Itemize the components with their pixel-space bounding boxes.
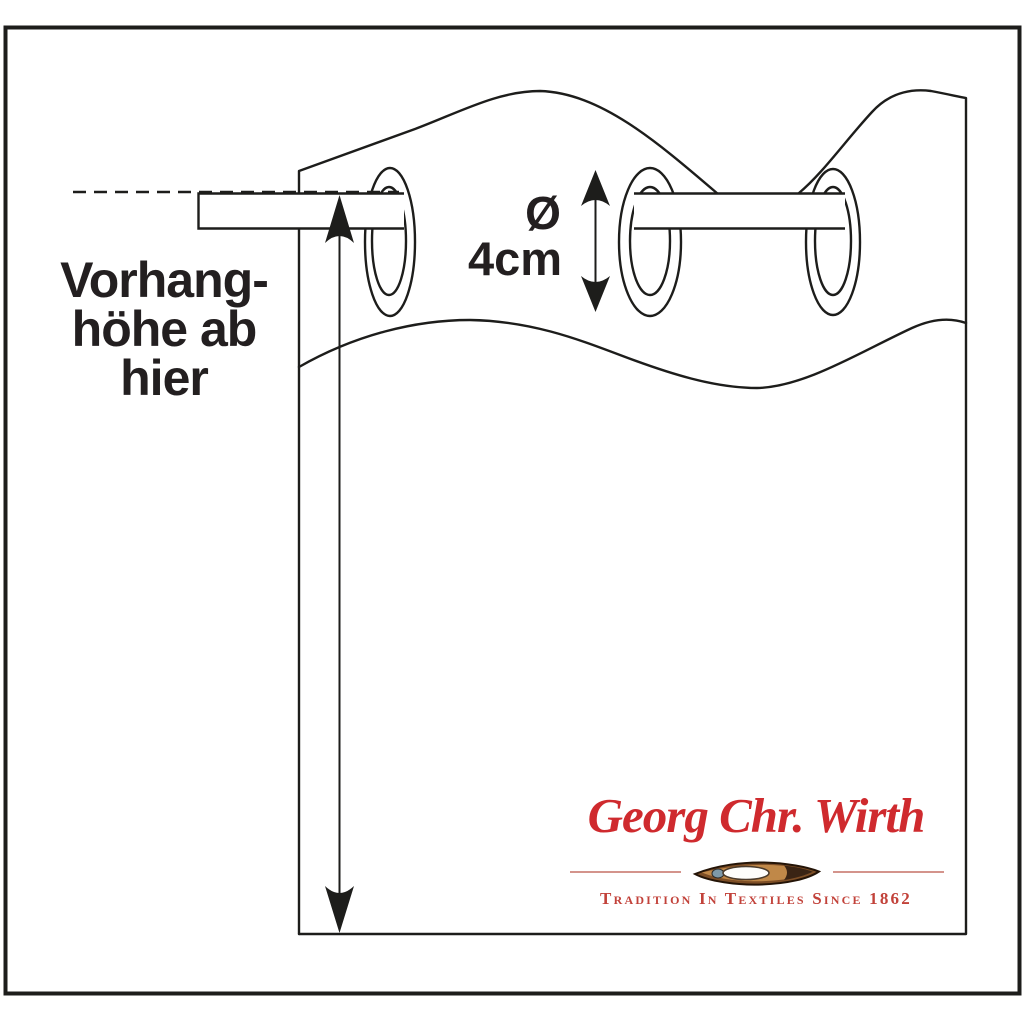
curtain-height-label: Vorhang- höhe ab hier (38, 256, 290, 403)
diameter-symbol: Ø (483, 190, 603, 236)
curtain-rod-middle-fill (634, 194, 845, 229)
brand-name: Georg Chr. Wirth (556, 791, 956, 841)
height-arrow-down-head (325, 886, 354, 933)
curtain-measurement-diagram: Vorhang- höhe ab hier Ø 4cm Georg Chr. W… (0, 0, 1024, 1024)
logo-divider (556, 858, 956, 888)
diameter-value: 4cm (435, 234, 595, 284)
curtain-rod-left-segment (199, 194, 405, 229)
curtain-height-label-line1: Vorhang- (38, 256, 290, 305)
shuttle-metal-detail (712, 869, 724, 878)
brand-tagline: Tradition In Textiles Since 1862 (536, 889, 976, 909)
header-band-lower-wave (299, 320, 966, 388)
weaving-shuttle-icon (692, 858, 822, 888)
shuttle-eye (723, 867, 769, 880)
curtain-height-label-line3: hier (38, 354, 290, 403)
logo-divider-left-line (570, 871, 681, 873)
curtain-height-arrow (325, 195, 354, 933)
logo-divider-right-line (833, 871, 944, 873)
frame-border (6, 28, 1020, 994)
curtain-height-label-line2: höhe ab (38, 305, 290, 354)
